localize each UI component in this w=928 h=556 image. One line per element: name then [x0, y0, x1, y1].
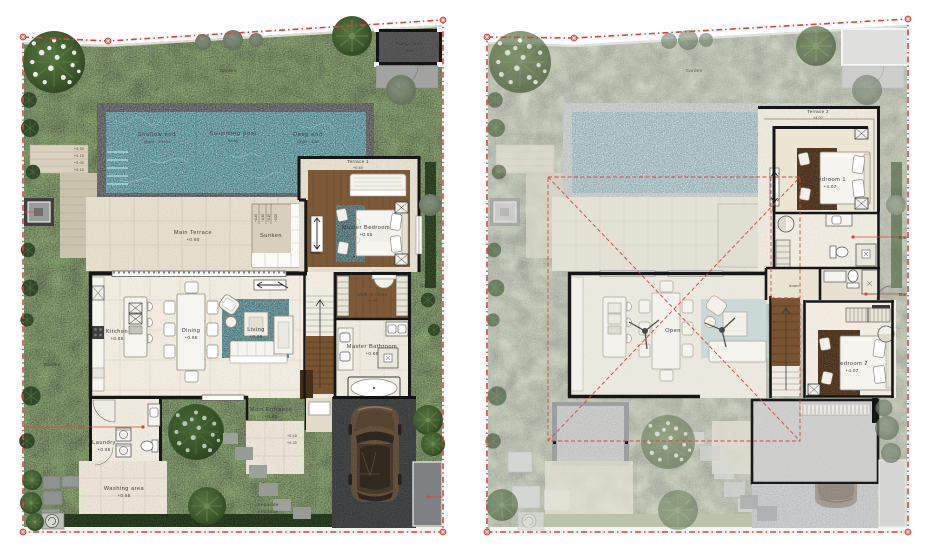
svg-text:Pump room: Pump room [396, 41, 422, 46]
svg-text:+0.55: +0.55 [117, 493, 130, 498]
svg-text:Bedroom 1: Bedroom 1 [814, 177, 846, 183]
svg-text:+0.15: +0.15 [74, 168, 84, 172]
svg-text:+0.65: +0.65 [367, 299, 377, 303]
svg-text:Master Bathroom: Master Bathroom [347, 344, 397, 350]
svg-text:+0.00: +0.00 [74, 161, 84, 165]
svg-text:Kitchen: Kitchen [106, 329, 128, 335]
svg-text:+0.00: +0.00 [274, 214, 278, 222]
svg-text:+4.07: +4.07 [823, 184, 836, 189]
svg-text:Ramp: Ramp [228, 139, 238, 143]
svg-text:Open: Open [665, 328, 681, 334]
svg-text:Bedroom 2: Bedroom 2 [836, 361, 868, 367]
svg-text:Walk-in close: Walk-in close [356, 292, 387, 297]
svg-text:+0.65: +0.65 [110, 336, 123, 341]
svg-text:-0.25: -0.25 [404, 49, 413, 53]
svg-text:+0.45: +0.45 [287, 434, 297, 438]
svg-text:Separate: Separate [257, 502, 278, 507]
svg-text:+0.65: +0.65 [97, 447, 110, 452]
svg-text:entrance: entrance [258, 509, 278, 514]
svg-text:Living: Living [247, 327, 265, 333]
svg-text:+0.15: +0.15 [74, 154, 84, 158]
svg-text:Main Terrace: Main Terrace [174, 230, 212, 236]
svg-text:+0.65: +0.65 [359, 232, 372, 237]
svg-text:+0.65: +0.65 [365, 351, 378, 356]
svg-text:Swimming pool: Swimming pool [210, 131, 257, 137]
svg-text:down: down [789, 284, 798, 288]
svg-text:+0.60: +0.60 [264, 414, 277, 419]
svg-text:Washing area: Washing area [104, 486, 145, 492]
svg-text:+0.15: +0.15 [267, 214, 271, 222]
svg-text:+0.60: +0.60 [353, 166, 363, 170]
svg-text:Sunken: Sunken [260, 233, 282, 239]
svg-text:Deep end: Deep end [293, 132, 323, 138]
svg-text:+0.65: +0.65 [184, 335, 197, 340]
svg-text:Main Entrance: Main Entrance [250, 407, 293, 413]
svg-text:+0.30: +0.30 [261, 214, 265, 222]
svg-text:+0.45: +0.45 [254, 214, 258, 222]
svg-text:Bat: Bat [899, 292, 907, 297]
svg-text:Depth - 1.60: Depth - 1.60 [297, 140, 319, 144]
svg-text:+0.65: +0.65 [249, 334, 262, 339]
svg-text:+4.07: +4.07 [845, 368, 858, 373]
svg-text:Depth - 1.40 m: Depth - 1.40 m [144, 140, 171, 144]
svg-text:+0.30: +0.30 [287, 441, 297, 445]
svg-text:Shallow end: Shallow end [138, 132, 176, 138]
svg-text:+0.30: +0.30 [74, 147, 84, 151]
svg-text:Laundry: Laundry [92, 440, 116, 446]
svg-text:+0.60: +0.60 [186, 237, 199, 242]
svg-text:Master Bedroom: Master Bedroom [342, 225, 390, 231]
svg-text:Dining: Dining [182, 328, 201, 334]
svg-text:Garden: Garden [43, 362, 60, 367]
svg-text:Terrace 2: Terrace 2 [807, 109, 829, 114]
svg-text:Garden: Garden [219, 68, 236, 73]
svg-text:Terrace 1: Terrace 1 [347, 159, 369, 164]
